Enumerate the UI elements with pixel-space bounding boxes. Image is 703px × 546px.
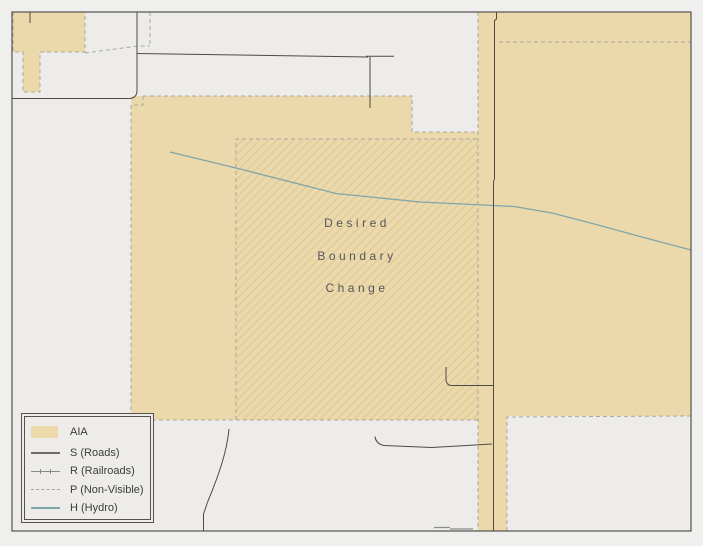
roads-line-symbol xyxy=(31,452,60,454)
legend-inner-border: AIA S (Roads) R (Railroads) xyxy=(24,416,151,520)
legend-item-aia: AIA xyxy=(31,423,88,440)
aia-swatch xyxy=(31,426,58,438)
legend-label: S (Roads) xyxy=(70,447,120,459)
legend-item-roads: S (Roads) xyxy=(31,444,120,461)
legend-item-railroads: R (Railroads) xyxy=(31,463,135,480)
annotation-line-3: Change xyxy=(236,272,478,305)
railroad-tick xyxy=(40,469,41,474)
hydro-line-symbol xyxy=(31,507,60,509)
non-visible-line-symbol xyxy=(31,489,60,490)
railroad-tick xyxy=(50,469,51,474)
aia-polygon-right xyxy=(507,12,691,416)
legend-item-non-visible: P (Non-Visible) xyxy=(31,481,144,498)
aia-swatch-icon xyxy=(31,426,60,438)
non-aia-notch xyxy=(412,96,478,132)
aia-polygon-topleft xyxy=(13,12,85,52)
map-annotation: Desired Boundary Change xyxy=(236,207,478,305)
legend-label: R (Railroads) xyxy=(70,465,135,477)
roads-line-icon xyxy=(31,452,60,454)
railroads-line-symbol xyxy=(31,471,60,472)
aia-polygon-vertical-strip xyxy=(478,12,507,531)
annotation-line-1: Desired xyxy=(236,207,478,240)
annotation-line-2: Boundary xyxy=(236,240,478,273)
map-view: Desired Boundary Change AIA S (Roads) xyxy=(0,0,703,546)
legend-label: AIA xyxy=(70,426,88,438)
legend: AIA S (Roads) R (Railroads) xyxy=(21,413,154,523)
legend-label: P (Non-Visible) xyxy=(70,484,144,496)
aia-polygon-topleft-strip xyxy=(23,52,40,92)
railroads-line-icon xyxy=(31,471,60,472)
non-visible-line-icon xyxy=(31,489,60,490)
hydro-line-icon xyxy=(31,507,60,509)
legend-item-hydro: H (Hydro) xyxy=(31,500,118,517)
legend-label: H (Hydro) xyxy=(70,502,118,514)
